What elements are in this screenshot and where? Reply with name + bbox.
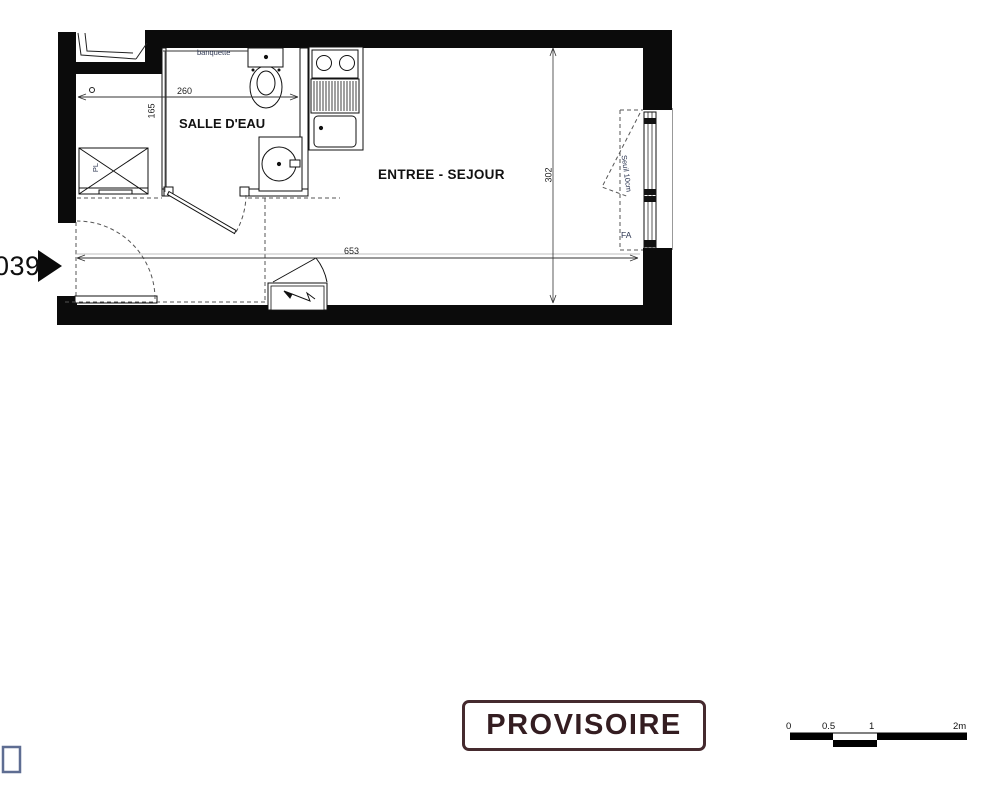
scale-bar-graphic [790, 733, 967, 747]
washbasin-fixture [259, 137, 302, 191]
provisoire-stamp: PROVISOIRE [462, 700, 706, 751]
duct-detail [78, 33, 147, 59]
dim-653-label: 653 [344, 246, 359, 256]
provisoire-stamp-text: PROVISOIRE [486, 709, 682, 742]
toilet-fixture [248, 48, 283, 108]
scale-tick-0: 0 [786, 721, 791, 732]
window-type-label: FA [621, 230, 631, 240]
exterior-walls [57, 30, 672, 325]
room-label-bathroom: SALLE D'EAU [179, 116, 265, 131]
kitchenette-fixture [309, 47, 363, 150]
radiator-box [268, 258, 327, 310]
closet-label: PL [91, 163, 100, 172]
door-stop-dot [90, 88, 95, 93]
closet-pl [79, 148, 148, 194]
unit-arrow-icon [38, 250, 62, 282]
bathroom-door [168, 192, 247, 234]
scale-tick-05: 0.5 [822, 721, 835, 732]
unit-number-label: 039 [0, 251, 41, 282]
plan-viewer-page: banquette 260 165 SALLE D'EAU ENTREE - S… [0, 0, 1008, 800]
window-fa [602, 108, 673, 250]
dim-302-label: 302 [544, 167, 554, 182]
scale-tick-2m: 2m [953, 721, 966, 732]
scale-tick-1: 1 [869, 721, 874, 732]
room-label-main: ENTREE - SEJOUR [378, 167, 505, 182]
entry-door [75, 221, 157, 303]
floor-plan-drawing [0, 0, 1008, 800]
dim-165-label: 165 [147, 103, 157, 118]
partial-dialog-fragment [3, 747, 20, 772]
banquette-label: banquette [197, 48, 230, 57]
dim-260-label: 260 [177, 86, 192, 96]
